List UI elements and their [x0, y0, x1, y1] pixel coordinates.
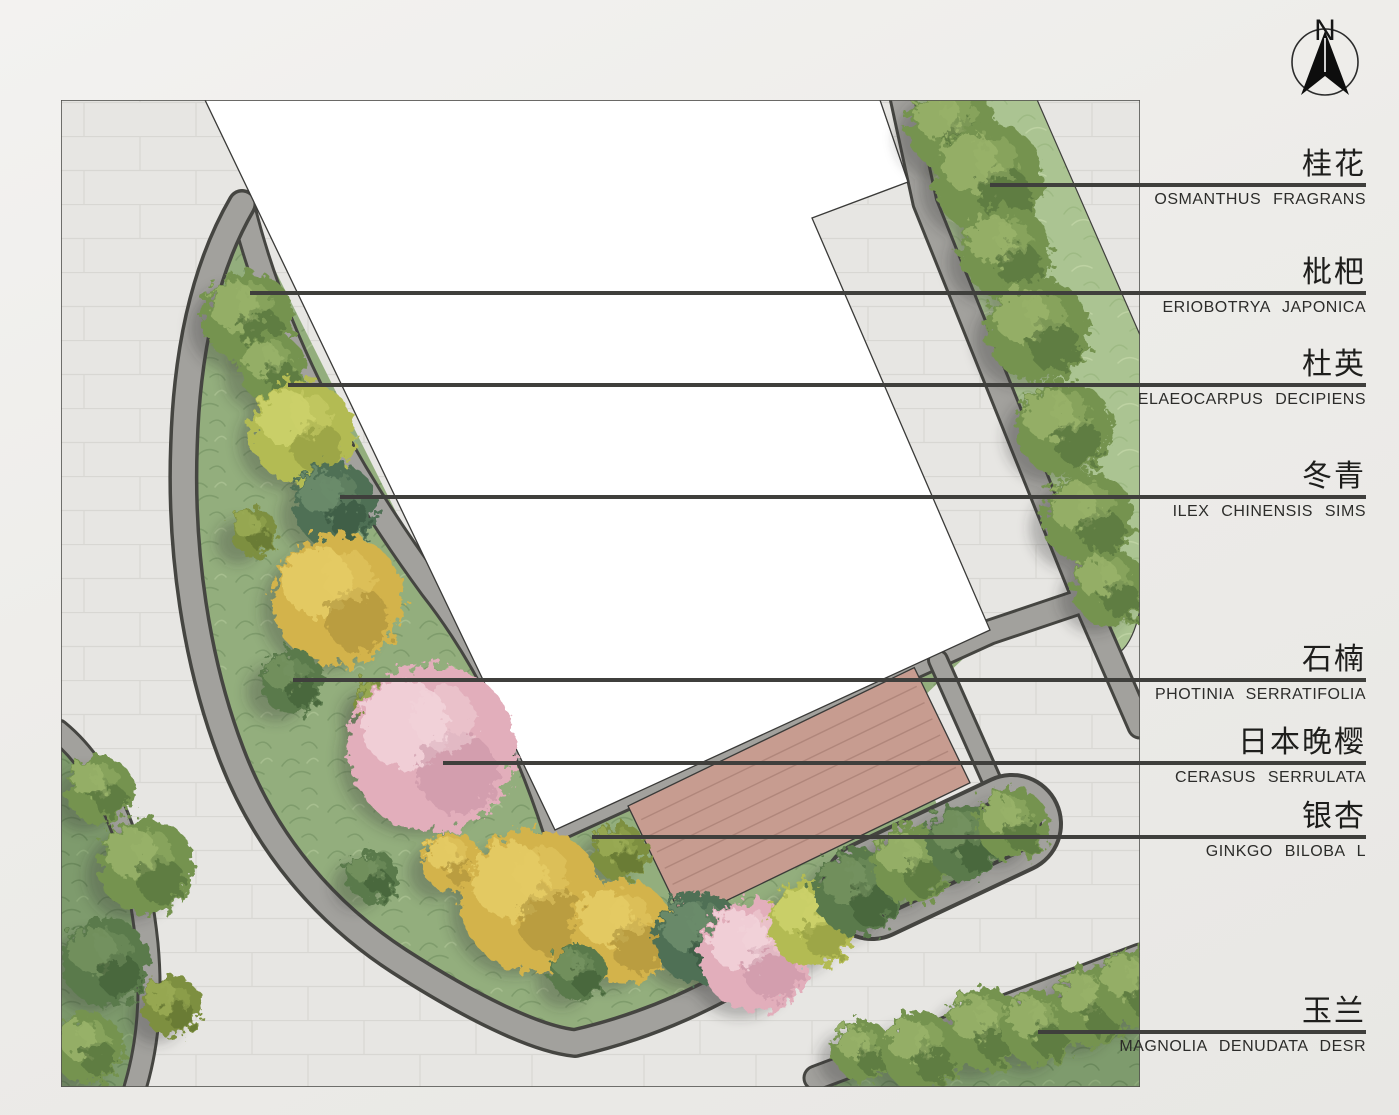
tree-yellow	[272, 534, 404, 666]
tree-darkgreen	[346, 850, 398, 902]
site-plan-svg: N	[0, 0, 1399, 1115]
tree-green	[52, 1012, 124, 1084]
tree-olive	[592, 824, 648, 880]
north-label: N	[1314, 14, 1336, 47]
site-plan-canvas: N 桂花OSMANTHUS FRAGRANS枇杷ERIOBOTRYA JAPON…	[0, 0, 1399, 1115]
tree-olive	[230, 508, 278, 556]
tree-green	[976, 788, 1048, 860]
tree-green	[1042, 472, 1134, 564]
tree-green	[1016, 380, 1112, 476]
tree-green	[98, 818, 194, 914]
tree-green	[1072, 550, 1148, 626]
tree-green	[66, 756, 134, 824]
north-compass: N	[1292, 14, 1358, 95]
tree-olive	[142, 976, 202, 1036]
tree-darkgreen	[62, 918, 150, 1006]
tree-green	[1096, 948, 1176, 1028]
tree-darkgreen	[550, 944, 606, 1000]
tree-pink	[348, 664, 516, 832]
